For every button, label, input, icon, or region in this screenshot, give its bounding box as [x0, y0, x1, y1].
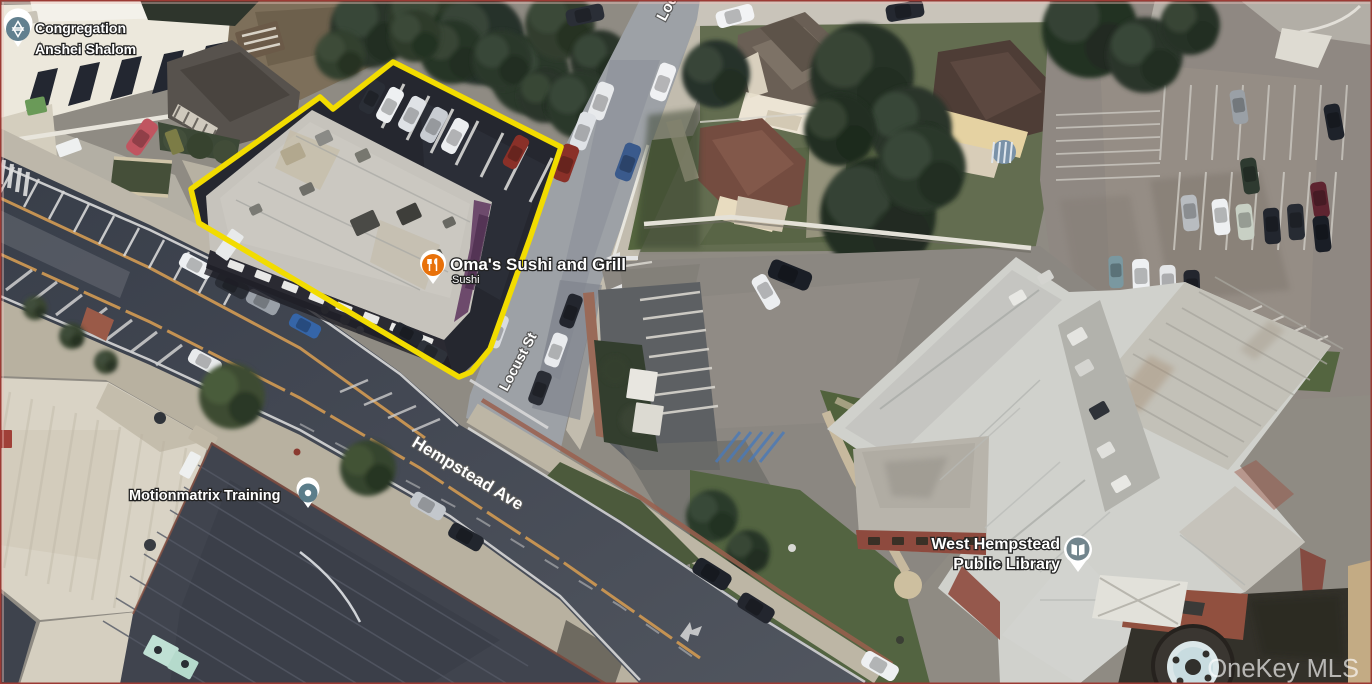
svg-text:Anshei Shalom: Anshei Shalom	[35, 41, 136, 57]
svg-text:West Hempstead: West Hempstead	[931, 536, 1060, 553]
svg-text:Congregation: Congregation	[35, 20, 126, 36]
svg-text:OneKey MLS: OneKey MLS	[1207, 655, 1359, 683]
svg-text:Public Library: Public Library	[953, 556, 1060, 573]
svg-text:Oma's Sushi and Grill: Oma's Sushi and Grill	[450, 255, 626, 274]
svg-text:Motionmatrix Training: Motionmatrix Training	[129, 488, 280, 504]
svg-text:Sushi: Sushi	[452, 274, 480, 286]
